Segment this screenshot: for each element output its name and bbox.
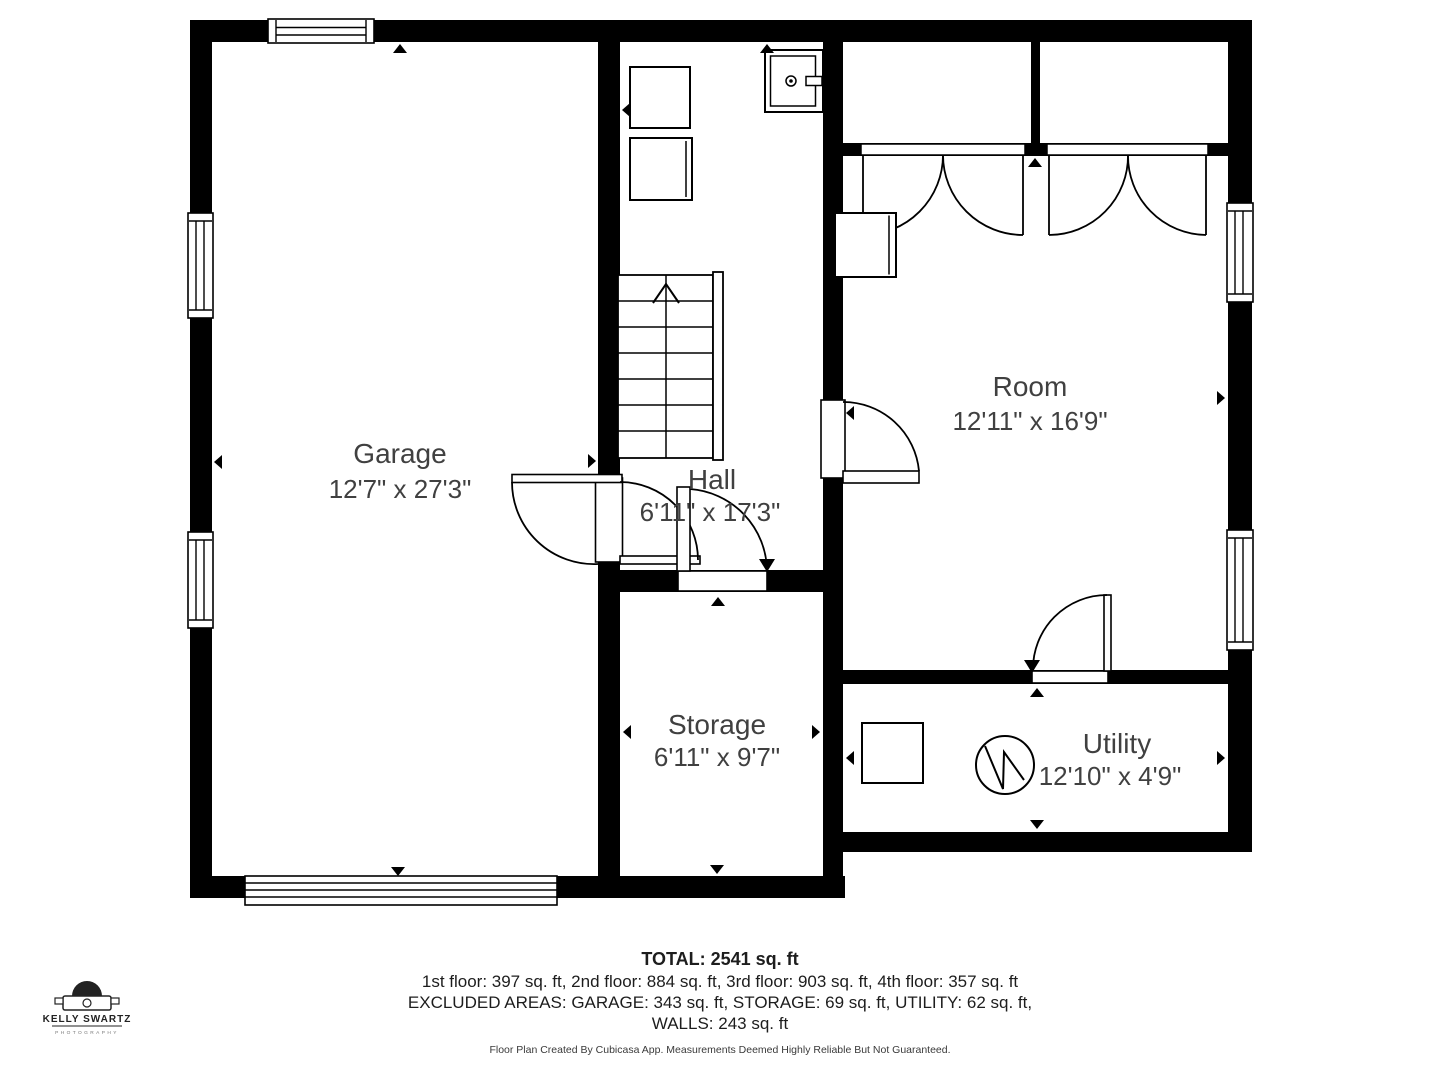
- dimension-marker-icon: [1030, 820, 1044, 829]
- dimension-marker-icon: [711, 597, 725, 606]
- area-summary: TOTAL: 2541 sq. ft 1st floor: 397 sq. ft…: [408, 949, 1032, 1056]
- dimension-marker-icon: [1028, 158, 1042, 167]
- dimension-marker-icon: [710, 865, 724, 874]
- utility-cabinet-icon: [862, 723, 923, 783]
- door-hall-room: [821, 400, 919, 483]
- dimension-marker-icon: [214, 455, 222, 469]
- dimension-marker-icon: [812, 725, 820, 739]
- dimension-marker-icon: [623, 725, 631, 739]
- wall-closet-divider: [1031, 42, 1040, 143]
- summary-floors: 1st floor: 397 sq. ft, 2nd floor: 884 sq…: [422, 972, 1019, 991]
- utility-sink-icon: [765, 50, 823, 112]
- room-label-garage: Garage: [353, 438, 446, 469]
- camera-logo-icon: [55, 981, 119, 1010]
- wall-garage-hall-divider: [598, 42, 620, 876]
- dryer-icon: [630, 138, 692, 200]
- logo-name: KELLY SWARTZ: [43, 1014, 132, 1025]
- dimension-marker-icon: [1030, 688, 1044, 697]
- window-icon: [188, 213, 213, 318]
- floor-plan: Garage 12'7" x 27'3" Hall 6'11" x 17'3" …: [0, 0, 1440, 1080]
- photographer-logo: KELLY SWARTZ PHOTOGRAPHY: [43, 981, 132, 1036]
- room-label-room: Room: [993, 371, 1068, 402]
- summary-excluded: EXCLUDED AREAS: GARAGE: 343 sq. ft, STOR…: [408, 993, 1032, 1012]
- disclaimer: Floor Plan Created By Cubicasa App. Meas…: [489, 1044, 950, 1056]
- dimension-marker-icon: [1217, 391, 1225, 405]
- window-icon: [188, 532, 213, 628]
- dimension-marker-icon: [1217, 751, 1225, 765]
- dimension-marker-icon: [846, 751, 854, 765]
- door-room-utility: [1024, 595, 1111, 683]
- window-icon: [268, 19, 374, 43]
- washer-icon: [630, 67, 690, 128]
- wall-left: [190, 20, 212, 898]
- dimension-marker-icon: [588, 454, 596, 468]
- dimension-marker-icon: [846, 406, 854, 420]
- room-dims-hall: 6'11" x 17'3": [640, 497, 781, 527]
- logo-tagline: PHOTOGRAPHY: [55, 1030, 119, 1036]
- wall-utility-bottom: [823, 832, 1252, 852]
- room-dims-utility: 12'10" x 4'9": [1039, 761, 1182, 791]
- window-icon: [1227, 530, 1253, 650]
- dimension-marker-icon: [622, 103, 630, 117]
- room-dims-room: 12'11" x 16'9": [952, 406, 1107, 436]
- room-label-utility: Utility: [1083, 728, 1151, 759]
- room-dims-garage: 12'7" x 27'3": [329, 474, 472, 504]
- window-icon: [1227, 203, 1253, 302]
- cabinet-icon: [835, 213, 896, 277]
- closet-doors-right: [1047, 144, 1208, 235]
- dimension-marker-icon: [391, 867, 405, 876]
- room-dims-storage: 6'11" x 9'7": [654, 742, 780, 772]
- stairs-up-icon: [618, 272, 723, 460]
- room-label-storage: Storage: [668, 709, 766, 740]
- water-heater-icon: [976, 736, 1034, 794]
- room-label-hall: Hall: [688, 464, 736, 495]
- garage-door-icon: [245, 876, 557, 905]
- summary-total: TOTAL: 2541 sq. ft: [641, 949, 798, 969]
- dimension-marker-icon: [760, 44, 774, 53]
- summary-walls: WALLS: 243 sq. ft: [652, 1014, 789, 1033]
- dimension-marker-icon: [393, 44, 407, 53]
